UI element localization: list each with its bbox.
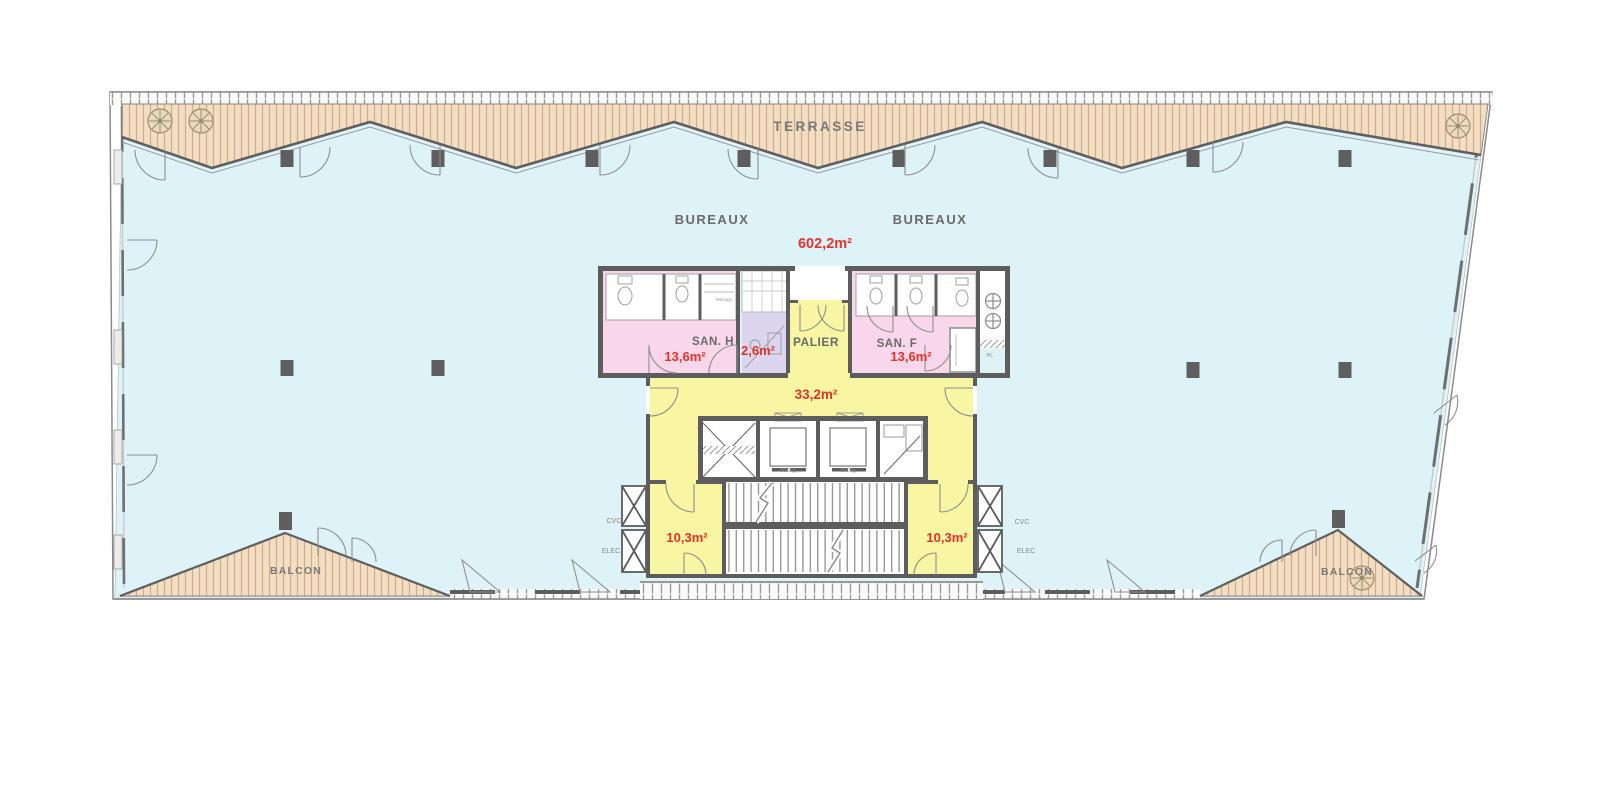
door-opening bbox=[938, 480, 968, 484]
cvc-label: CVC bbox=[607, 518, 622, 525]
toilet-icon bbox=[676, 276, 688, 283]
cvc-label: CVC bbox=[1015, 519, 1030, 526]
offices-left-label: BUREAUX bbox=[675, 212, 750, 227]
column bbox=[1044, 150, 1057, 167]
terrace-label: TERRASSE bbox=[773, 119, 867, 134]
stair-wall bbox=[722, 480, 726, 578]
landing-area-label: 33,2m² bbox=[795, 387, 838, 402]
sanitary-men-area: 13,6m² bbox=[664, 349, 706, 364]
landing-door-opening bbox=[798, 300, 842, 303]
toilet-icon bbox=[618, 287, 632, 305]
toilet-icon bbox=[618, 276, 632, 284]
floorplan-page: TERRASSE BUREAUX BUREAUX 602,2m² SAN. H … bbox=[0, 0, 1600, 787]
tree-icon bbox=[148, 109, 172, 133]
stair-landing-rail bbox=[726, 522, 904, 529]
elevator-capacity-label: 800kg bbox=[841, 468, 856, 474]
column bbox=[738, 150, 751, 167]
tree-icon bbox=[1446, 114, 1470, 138]
column bbox=[1187, 150, 1200, 167]
toilet-icon bbox=[956, 278, 968, 285]
elevator-cab bbox=[830, 428, 866, 466]
balcony-right-label: BALCON bbox=[1321, 566, 1373, 578]
stairs bbox=[722, 480, 908, 578]
stair-wall bbox=[904, 480, 908, 578]
landing-top-opening bbox=[795, 266, 845, 271]
landing-label: PALIER bbox=[793, 335, 839, 349]
column bbox=[279, 512, 292, 530]
stair-flight-upper bbox=[726, 483, 904, 522]
stair-core bbox=[622, 378, 1002, 599]
top-facade-band bbox=[110, 92, 1492, 105]
stairwell-right-area: 10,3m² bbox=[926, 530, 968, 545]
offices-right-label: BUREAUX bbox=[893, 212, 968, 227]
sanitary-block bbox=[598, 266, 1010, 378]
tree-icon bbox=[189, 109, 213, 133]
door-opening bbox=[646, 386, 650, 414]
left-facade-louver bbox=[114, 535, 122, 569]
door-opening bbox=[666, 480, 696, 484]
column bbox=[1339, 150, 1352, 167]
toilet-icon bbox=[956, 290, 968, 306]
column bbox=[893, 150, 906, 167]
toilet-icon bbox=[870, 276, 882, 283]
column bbox=[281, 150, 294, 167]
cleaning-closet-label: Ménage bbox=[716, 297, 733, 302]
shelving-unit bbox=[742, 271, 788, 312]
sanitary-men-label: SAN. H bbox=[692, 336, 734, 348]
core-facade-band bbox=[640, 582, 983, 599]
elevator-cab bbox=[770, 428, 806, 466]
elevator-capacity-label: 800kg bbox=[781, 468, 796, 474]
left-facade-louver bbox=[114, 430, 122, 464]
hatched-sill bbox=[980, 340, 1008, 348]
landing-bottom-opening bbox=[788, 373, 850, 378]
cabinet bbox=[950, 328, 976, 372]
column bbox=[1332, 510, 1345, 528]
offices-area-label: 602,2m² bbox=[798, 236, 852, 252]
toilet-icon bbox=[910, 288, 922, 304]
toilet-icon bbox=[910, 276, 922, 283]
floorplan-drawing: TERRASSE BUREAUX BUREAUX 602,2m² SAN. H … bbox=[0, 0, 1600, 787]
closet-pl-label: PL bbox=[987, 353, 994, 359]
left-facade-louver bbox=[114, 330, 122, 364]
column bbox=[1339, 362, 1352, 378]
column bbox=[281, 360, 294, 376]
elec-label: ELEC bbox=[602, 548, 620, 555]
toilet-icon bbox=[676, 286, 688, 302]
closet-pl bbox=[978, 348, 1008, 373]
stair-flight-lower bbox=[726, 530, 904, 572]
landing-recess bbox=[788, 268, 850, 303]
stairwell-left-area: 10,3m² bbox=[666, 530, 708, 545]
left-facade-louver bbox=[114, 150, 122, 184]
toilet-icon bbox=[870, 288, 882, 304]
door-opening bbox=[973, 386, 977, 414]
elec-label: ELEC bbox=[1017, 548, 1035, 555]
column bbox=[432, 360, 445, 376]
sanitary-women-area: 13,6m² bbox=[890, 349, 932, 364]
column bbox=[586, 150, 599, 167]
column bbox=[432, 150, 445, 167]
duct-room-area: 2,6m² bbox=[741, 343, 776, 358]
column bbox=[1187, 362, 1200, 378]
balcony-left-label: BALCON bbox=[270, 565, 322, 577]
